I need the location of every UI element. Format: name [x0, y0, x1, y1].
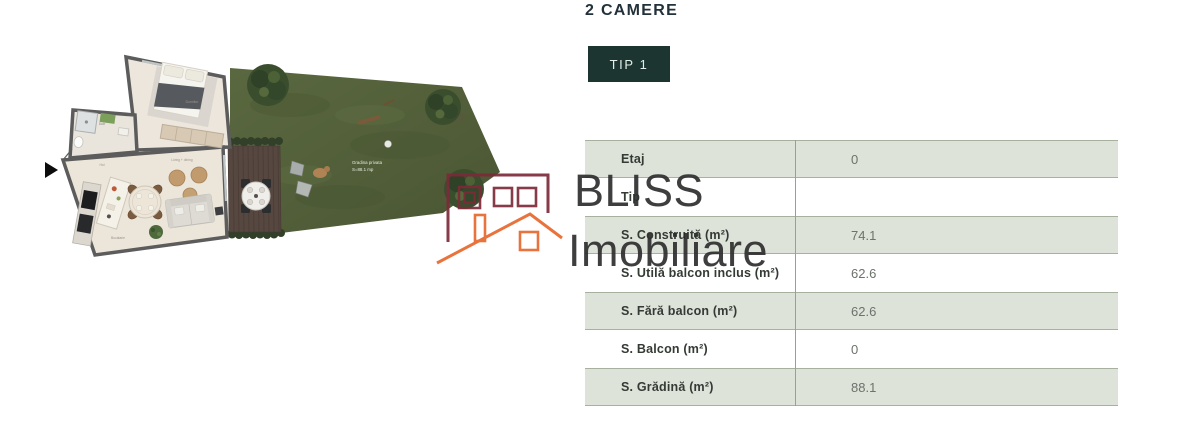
plant [149, 225, 163, 239]
row-value: 0 [795, 141, 1118, 177]
room-label-bathroom: Baie [99, 122, 106, 126]
table-column-divider [795, 140, 796, 406]
row-label: S. Construită (m²) [585, 217, 795, 253]
row-value: 62.6 [795, 254, 1118, 292]
row-value: 62.6 [795, 293, 1118, 329]
row-label: S. Grădină (m²) [585, 369, 795, 405]
room-label-bedroom: Dormitor [186, 100, 200, 104]
apartment-type-section: Gradina privata S=88.1 mp [0, 0, 1200, 439]
room-label-kitchen: Bucatarie [111, 236, 125, 240]
table-row: Etaj 0 [585, 140, 1118, 178]
deck-dining-set [241, 179, 271, 213]
garden-label-line2: S=88.1 mp [352, 167, 374, 172]
row-value: 74.1 [795, 217, 1118, 253]
row-label: S. Utilă balcon inclus (m²) [585, 254, 795, 292]
row-label: Etaj [585, 141, 795, 177]
row-label: S. Balcon (m²) [585, 330, 795, 368]
table-row: Tip [585, 178, 1118, 216]
row-label: S. Fără balcon (m²) [585, 293, 795, 329]
table-row: S. Utilă balcon inclus (m²) 62.6 [585, 254, 1118, 292]
floor-plan-image[interactable]: Gradina privata S=88.1 mp [40, 45, 510, 280]
row-value: 88.1 [795, 369, 1118, 405]
garden-tree [425, 89, 461, 125]
plan-arrow-icon[interactable] [45, 162, 58, 178]
row-value [795, 178, 1118, 216]
room-label-hallway: Hol [100, 163, 105, 167]
table-row: S. Grădină (m²) 88.1 [585, 368, 1118, 406]
room-label-living: Living + dining [171, 158, 192, 162]
bedroom-bed [147, 61, 218, 127]
type-tab-tip1[interactable]: TIP 1 [588, 46, 670, 82]
garden-tree [247, 64, 289, 106]
table-row: S. Balcon (m²) 0 [585, 330, 1118, 368]
dining-table [126, 183, 164, 221]
details-table: Etaj 0 Tip S. Construită (m²) 74.1 S. Ut… [585, 140, 1118, 406]
garden-tree [444, 169, 484, 209]
table-row: S. Fără balcon (m²) 62.6 [585, 292, 1118, 330]
section-title: 2 CAMERE [585, 2, 678, 20]
table-row: S. Construită (m²) 74.1 [585, 216, 1118, 254]
garden-label-line1: Gradina privata [352, 160, 383, 165]
deck-terrace [228, 146, 281, 232]
row-label: Tip [585, 178, 795, 216]
row-value: 0 [795, 330, 1118, 368]
